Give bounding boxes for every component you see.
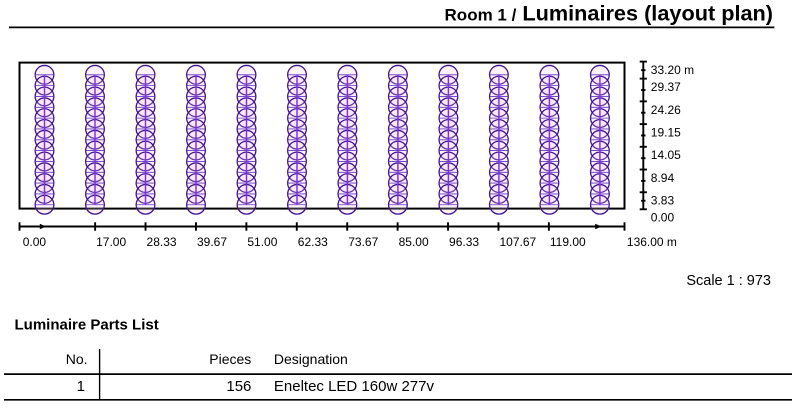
svg-text:85.00: 85.00 (399, 235, 429, 249)
svg-text:119.00: 119.00 (550, 235, 586, 249)
svg-text:62.33: 62.33 (298, 235, 328, 249)
svg-text:No.: No. (66, 351, 88, 367)
svg-text:1: 1 (77, 378, 85, 395)
svg-text:Luminaire Parts List: Luminaire Parts List (15, 317, 159, 334)
svg-text:17.00: 17.00 (96, 235, 126, 249)
svg-text:14.05: 14.05 (651, 148, 681, 162)
svg-text:156: 156 (226, 378, 251, 395)
svg-text:Room 1 / Luminaires (layout pl: Room 1 / Luminaires (layout plan) (445, 1, 773, 26)
svg-text:0.00: 0.00 (651, 211, 675, 225)
svg-text:Eneltec LED 160w 277v: Eneltec LED 160w 277v (274, 378, 435, 395)
svg-text:33.20 m: 33.20 m (651, 63, 694, 77)
svg-text:29.37: 29.37 (651, 80, 681, 94)
svg-text:8.94: 8.94 (651, 171, 675, 185)
svg-text:0.00: 0.00 (23, 235, 47, 249)
svg-text:Designation: Designation (274, 351, 348, 367)
svg-text:19.15: 19.15 (651, 126, 681, 140)
svg-text:73.67: 73.67 (348, 235, 378, 249)
svg-text:136.00 m: 136.00 m (627, 235, 677, 249)
svg-text:24.26: 24.26 (651, 103, 681, 117)
svg-text:28.33: 28.33 (147, 235, 177, 249)
svg-text:39.67: 39.67 (197, 235, 227, 249)
svg-text:Scale 1 : 973: Scale 1 : 973 (686, 273, 771, 289)
svg-text:96.33: 96.33 (449, 235, 479, 249)
svg-text:Pieces: Pieces (209, 351, 251, 367)
svg-text:51.00: 51.00 (247, 235, 277, 249)
svg-text:107.67: 107.67 (499, 235, 536, 249)
svg-text:3.83: 3.83 (651, 194, 675, 208)
